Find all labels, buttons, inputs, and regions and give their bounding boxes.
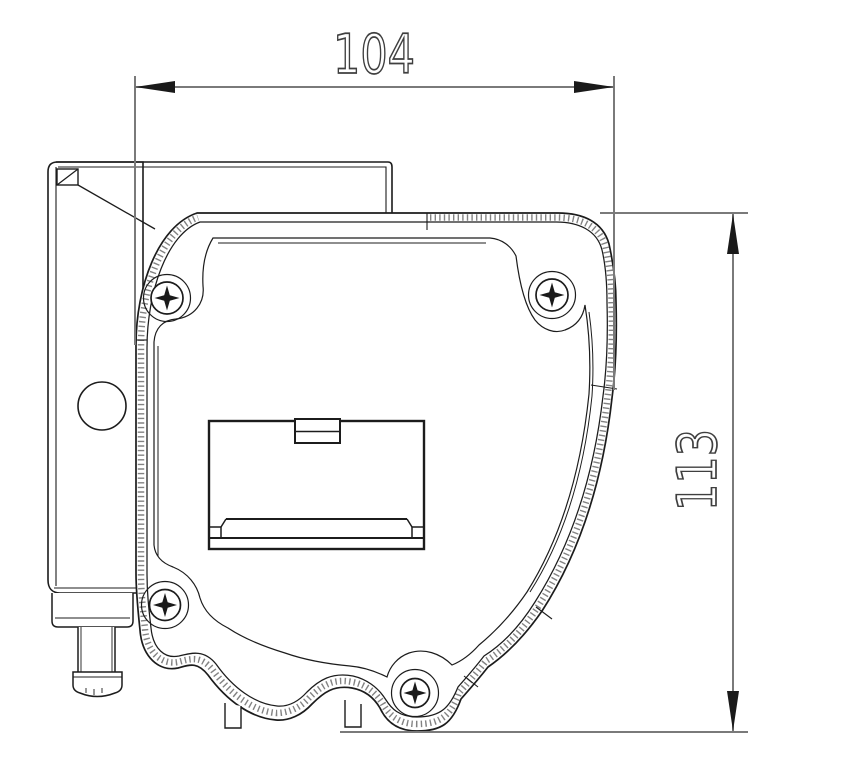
screw-bottom-center xyxy=(401,679,430,708)
screw-top-right xyxy=(536,279,568,311)
bottom-tab-right xyxy=(345,700,361,727)
roller-blind-side-view-drawing: 104 113 xyxy=(0,0,847,768)
screw-bottom-left xyxy=(150,590,181,621)
arrowhead-right-icon xyxy=(574,81,614,93)
bracket-mounting-hole xyxy=(78,382,126,430)
arrowhead-down-icon xyxy=(727,691,739,731)
arrowhead-up-icon xyxy=(727,214,739,254)
bracket-foot-step xyxy=(52,593,133,627)
height-dimension-text: 113 xyxy=(666,429,729,511)
pin-body-fill xyxy=(78,627,115,672)
pin-end-cap xyxy=(73,672,122,697)
width-dimension-text: 104 xyxy=(333,23,415,86)
bracket-outline xyxy=(48,162,143,593)
bottom-tab-left xyxy=(225,703,241,728)
technical-drawing-canvas: 104 113 xyxy=(0,0,847,768)
arrowhead-left-icon xyxy=(135,81,175,93)
battery-cover xyxy=(209,419,424,549)
screw-top-left xyxy=(151,282,183,314)
